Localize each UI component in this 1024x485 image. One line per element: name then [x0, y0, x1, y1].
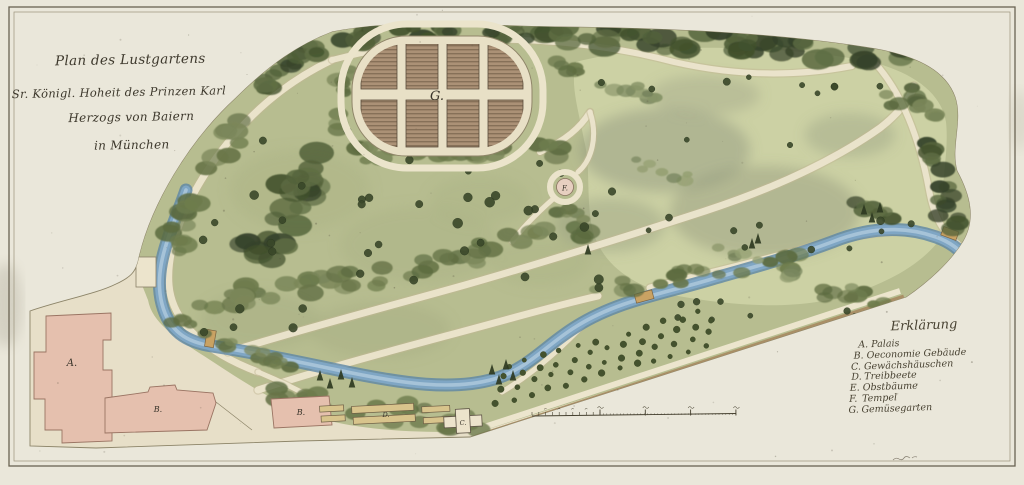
map-letter-palais: A. [66, 358, 77, 369]
legend-heading: Erklärung [890, 315, 1016, 334]
legend-entry-label: Gemüsegarten [861, 402, 932, 415]
palais-building [34, 313, 112, 443]
map-letter-gewaechshaus: C. [460, 419, 467, 427]
map-legend: Erklärung A.Palais B.Oeconomie Gebäude C… [844, 315, 1019, 417]
map-letter-oeconomie: B. [153, 405, 162, 414]
legend-entry-key: G. [848, 405, 861, 416]
map-title-line: Herzogs von Baiern [42, 108, 220, 125]
riverside-building [136, 257, 156, 287]
map-letter-gemuesegarten: G. [430, 89, 444, 104]
map-letter-treibbeete: D. [381, 411, 389, 419]
map-title: Plan des Lustgartens Sr. Königl. Hoheit … [41, 50, 221, 153]
map-sheet: G. F. A. B. B. D. C. [0, 0, 1024, 485]
map-title-line: Plan des Lustgartens [41, 50, 219, 69]
map-title-line: Sr. Königl. Hoheit des Prinzen Karl [12, 83, 220, 101]
map-letter-annex: B. [296, 408, 305, 417]
map-letter-tempel: F. [561, 185, 568, 193]
